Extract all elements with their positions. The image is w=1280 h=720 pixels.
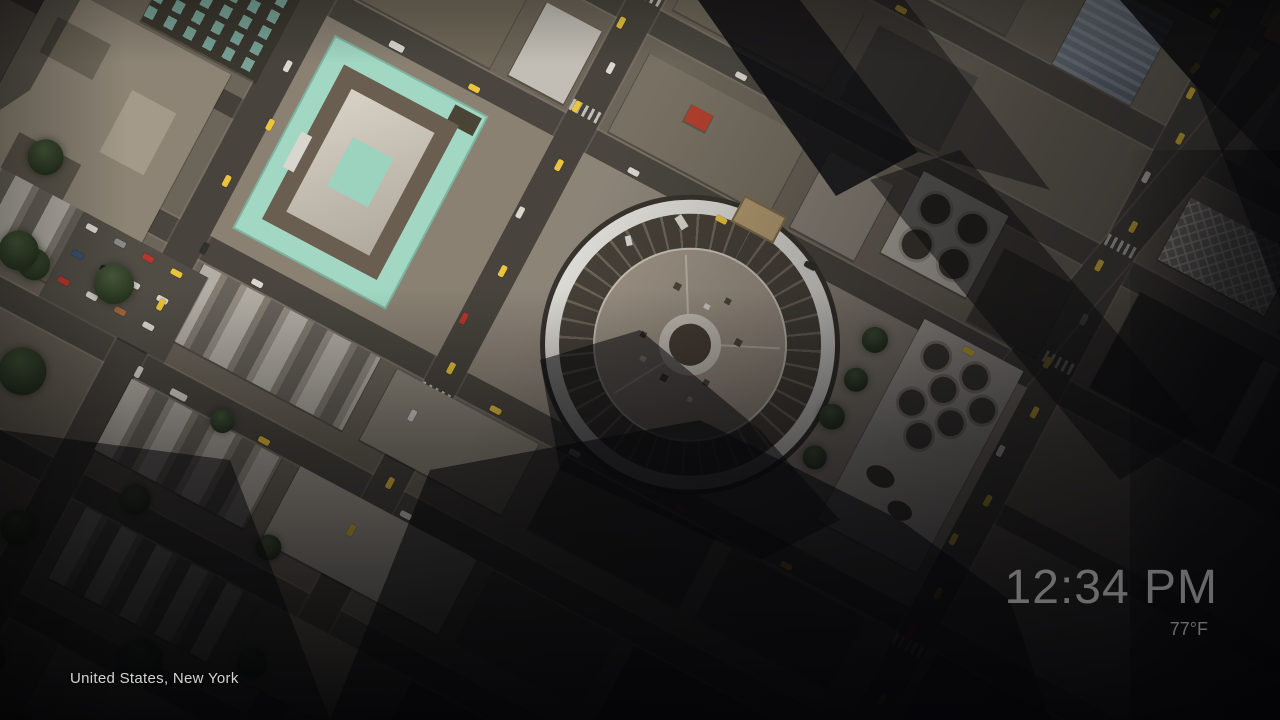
roof-tank-circle (915, 335, 958, 378)
farley-mint-core (327, 137, 393, 207)
clock-widget: 12:34 PM 77°F (1005, 564, 1218, 640)
roof-white-spot (686, 396, 693, 403)
parked-car (142, 253, 155, 264)
parked-car (57, 276, 70, 287)
tree-canopy (0, 339, 55, 404)
roof-dark-ellipse (863, 461, 899, 493)
hub-core (662, 316, 719, 373)
roof-white-strip (283, 131, 312, 172)
parked-car (85, 223, 98, 234)
roof-dark-ellipse (884, 497, 915, 525)
roof-vent (702, 378, 710, 386)
roof-white-spot (639, 355, 647, 362)
roof-vent (659, 373, 668, 382)
parked-car (142, 321, 155, 332)
clock-time: 12:34 PM (1005, 564, 1218, 612)
roof-vent (639, 330, 647, 338)
roof-tank-circle (953, 356, 996, 399)
parked-car (113, 238, 126, 249)
tree-canopy (0, 628, 12, 685)
roof-vent (673, 281, 682, 290)
roof-vent (723, 297, 731, 305)
parked-car (71, 249, 84, 260)
temperature-label: 77°F (1005, 619, 1218, 640)
parked-car (170, 268, 183, 279)
roof-patch (99, 90, 176, 175)
roof-white-spot (703, 303, 711, 310)
roof-patch (39, 17, 111, 80)
location-label: United States, New York (70, 670, 239, 687)
parked-car (113, 306, 126, 317)
ambient-screensaver: United States, New York 12:34 PM 77°F (0, 0, 1280, 720)
